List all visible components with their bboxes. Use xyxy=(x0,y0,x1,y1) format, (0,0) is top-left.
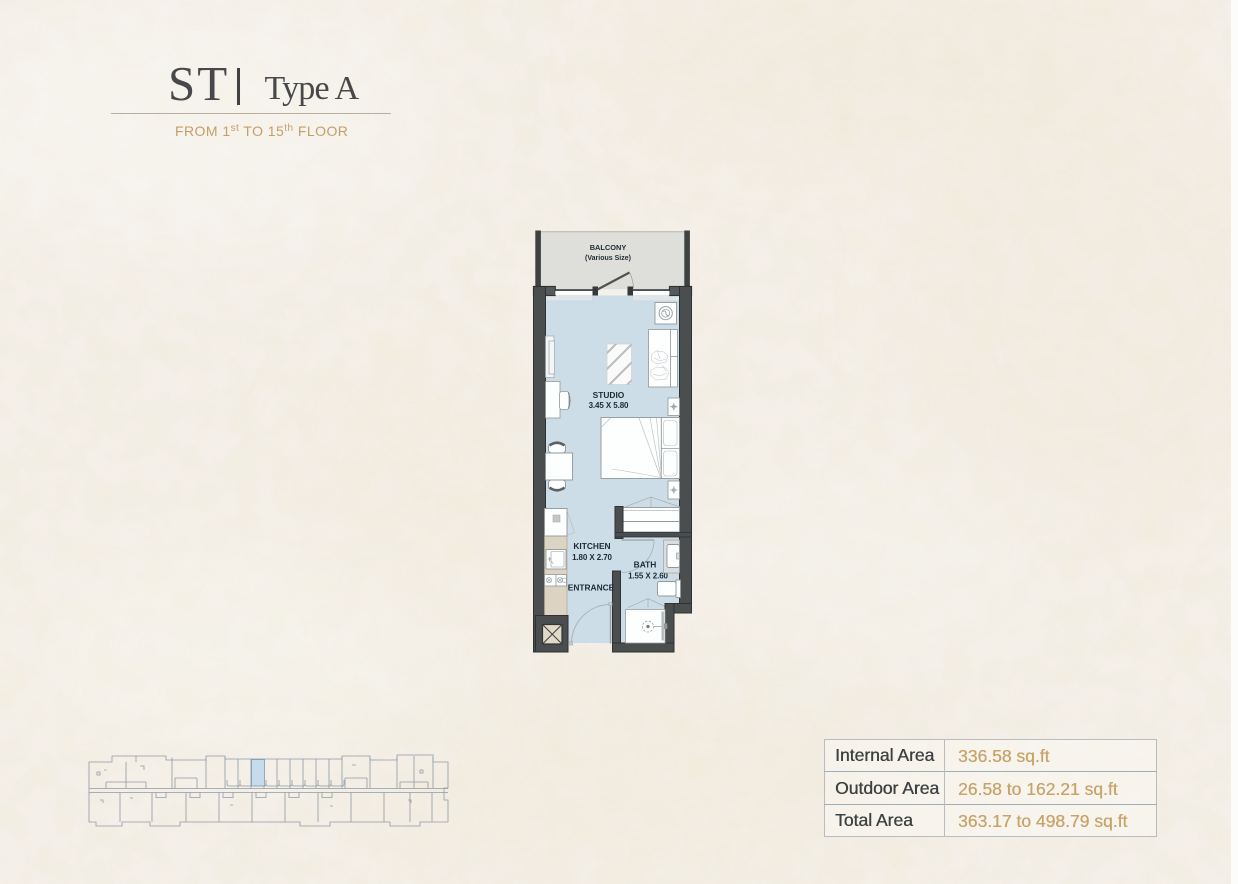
svg-text:ENTRANCE: ENTRANCE xyxy=(568,583,615,593)
svg-text:1.80 X 2.70: 1.80 X 2.70 xyxy=(572,553,612,562)
svg-text:3.45 X 5.80: 3.45 X 5.80 xyxy=(589,401,629,410)
svg-text:BALCONY: BALCONY xyxy=(590,243,627,252)
svg-text:KITCHEN: KITCHEN xyxy=(573,541,610,551)
svg-text:BATH: BATH xyxy=(634,560,657,570)
svg-text:1.55 X 2.60: 1.55 X 2.60 xyxy=(628,572,668,581)
svg-text:(Various Size): (Various Size) xyxy=(585,255,631,262)
svg-text:STUDIO: STUDIO xyxy=(593,390,625,400)
